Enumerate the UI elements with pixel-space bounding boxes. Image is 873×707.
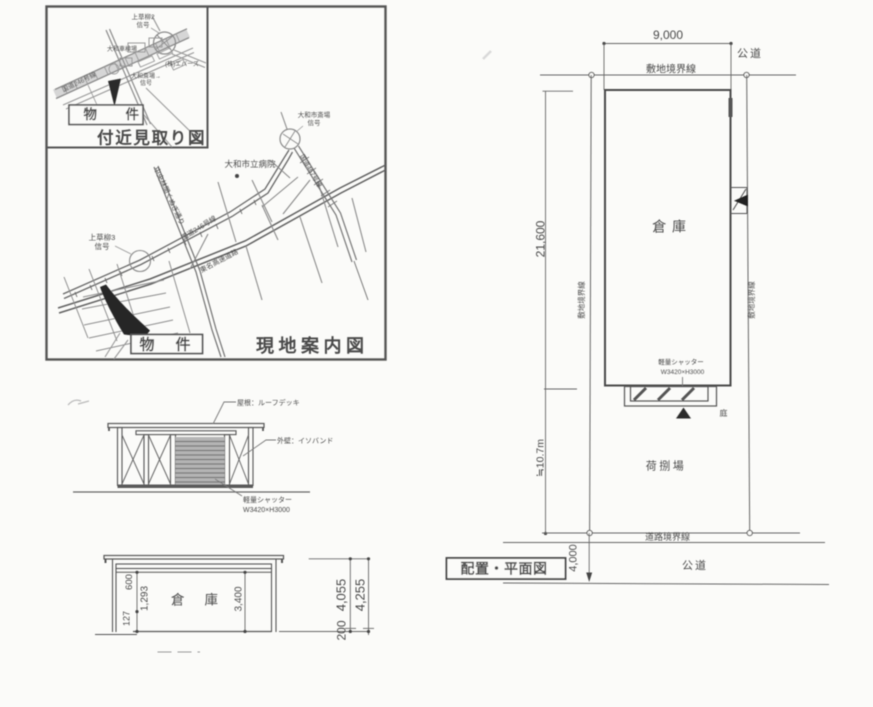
svg-text:庭: 庭 — [720, 408, 728, 418]
svg-text:敷地境界線: 敷地境界線 — [576, 281, 586, 319]
svg-text:屋根：ルーフデッキ: 屋根：ルーフデッキ — [237, 398, 300, 407]
svg-text:1,293: 1,293 — [140, 586, 151, 611]
svg-text:信号: 信号 — [140, 79, 152, 87]
svg-text:大和車検場: 大和車検場 — [107, 45, 137, 53]
svg-text:(株)エバーズ: (株)エバーズ — [165, 60, 199, 68]
svg-text:大和市斎場: 大和市斎場 — [298, 110, 331, 119]
svg-text:上草柳3: 上草柳3 — [89, 232, 116, 242]
svg-text:公道: 公道 — [737, 46, 763, 60]
svg-text:4,255: 4,255 — [353, 579, 368, 612]
svg-text:軽量シャッター: 軽量シャッター — [658, 357, 704, 366]
svg-text:倉庫: 倉庫 — [652, 219, 692, 235]
svg-text:信号: 信号 — [308, 118, 322, 127]
svg-text:600: 600 — [124, 574, 135, 590]
svg-text:大和斎場→: 大和斎場→ — [131, 72, 161, 80]
svg-text:127: 127 — [122, 611, 132, 626]
svg-text:大和市立病院: 大和市立病院 — [224, 159, 276, 169]
svg-text:付近見取り図: 付近見取り図 — [97, 128, 206, 148]
svg-text:9,000: 9,000 — [653, 28, 683, 42]
svg-text:物件: 物件 — [140, 336, 212, 354]
svg-text:4,055: 4,055 — [334, 579, 349, 612]
svg-text:国道467号線: 国道467号線 — [298, 153, 324, 190]
svg-text:国道246号線: 国道246号線 — [179, 214, 217, 243]
svg-text:3,400: 3,400 — [233, 586, 244, 611]
svg-text:21,600: 21,600 — [534, 220, 548, 257]
svg-text:W3420×H3000: W3420×H3000 — [243, 507, 290, 514]
svg-text:200: 200 — [335, 620, 349, 640]
svg-text:敷地境界線: 敷地境界線 — [746, 281, 756, 319]
svg-text:荷捌場: 荷捌場 — [646, 459, 687, 473]
svg-text:物件: 物件 — [84, 106, 168, 122]
svg-text:軽量シャッター: 軽量シャッター — [243, 495, 292, 504]
svg-text:上草柳2: 上草柳2 — [131, 12, 155, 21]
svg-text:信号: 信号 — [137, 20, 151, 29]
svg-text:敷地境界線: 敷地境界線 — [646, 63, 696, 76]
svg-text:倉庫: 倉庫 — [171, 593, 238, 608]
svg-text:外壁：イソバンド: 外壁：イソバンド — [277, 436, 333, 445]
svg-text:道路境界線: 道路境界線 — [645, 531, 690, 542]
svg-text:配置・平面図: 配置・平面図 — [461, 561, 548, 577]
svg-text:信号: 信号 — [95, 241, 110, 251]
svg-text:W3420×H3000: W3420×H3000 — [661, 369, 705, 376]
svg-text:公道: 公道 — [682, 558, 708, 572]
svg-text:中央林間くぬぎ通り: 中央林間くぬぎ通り — [152, 166, 187, 227]
svg-text:4,000: 4,000 — [568, 544, 580, 572]
svg-text:≒10.7m: ≒10.7m — [535, 439, 547, 477]
svg-text:現地案内図: 現地案内図 — [256, 335, 369, 356]
